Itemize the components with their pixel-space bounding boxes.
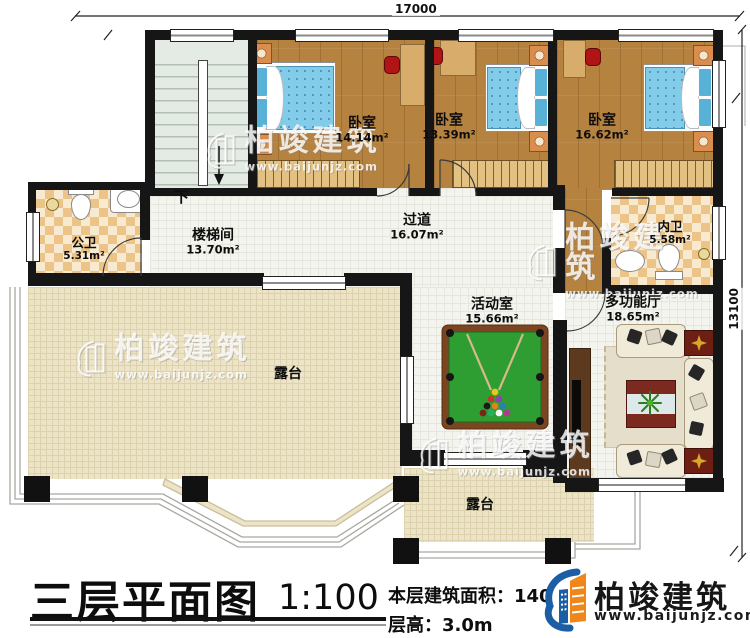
stair-down-label: 下 xyxy=(174,186,189,207)
floor-height-text: 层高：3.0m xyxy=(388,611,493,637)
column xyxy=(24,476,50,502)
stair-landing xyxy=(155,40,248,55)
title-underline xyxy=(30,617,386,621)
column xyxy=(393,476,419,502)
title-underline-thin xyxy=(30,624,386,626)
wall xyxy=(400,450,445,466)
wall xyxy=(612,188,713,196)
plant-icon xyxy=(636,389,664,417)
sofa-pillow xyxy=(689,421,704,436)
bed-bedroom2-sheet xyxy=(517,67,535,129)
billiard-table xyxy=(441,324,549,430)
dim-tick xyxy=(71,11,80,21)
wall xyxy=(409,188,440,196)
dim-tick xyxy=(104,30,112,40)
bed-bedroom3-sheet xyxy=(681,67,699,129)
wall xyxy=(28,182,148,190)
dim-tick xyxy=(732,93,740,103)
wall xyxy=(140,182,150,240)
wall xyxy=(145,30,155,196)
wall xyxy=(565,478,600,492)
room-label-stairwell: 楼梯间 13.70m² xyxy=(186,227,239,256)
nightstand-icon xyxy=(529,45,550,66)
dim-tick xyxy=(738,25,746,34)
wall xyxy=(553,320,567,483)
bed-bedroom2-mattress xyxy=(487,67,521,129)
bed-bedroom1-mattress xyxy=(276,66,334,130)
planter-icon xyxy=(684,448,714,474)
wall xyxy=(713,30,723,60)
wall xyxy=(28,273,264,286)
nightstand-icon xyxy=(529,131,550,152)
nightstand-icon xyxy=(693,131,714,152)
window xyxy=(443,452,527,466)
dim-tick xyxy=(738,553,746,562)
room-label-bedroom1: 卧室 14.14m² xyxy=(335,115,388,144)
column xyxy=(182,476,208,502)
plan-scale: 1:100 xyxy=(278,578,379,618)
floor-area-text: 本层建筑面积：140 xyxy=(388,582,552,608)
window xyxy=(712,60,726,128)
window xyxy=(400,356,414,424)
wall xyxy=(553,248,565,293)
room-label-corridor: 过道 16.07m² xyxy=(390,212,443,241)
room-label-activity: 活动室 15.66m² xyxy=(465,296,518,325)
window xyxy=(26,212,40,262)
dimension-right: 13100 xyxy=(724,288,744,330)
wall xyxy=(400,273,412,358)
room-label-inner-bath: 内卫 5.58m² xyxy=(649,220,690,246)
sliding-door xyxy=(262,276,346,290)
desk-bedroom1 xyxy=(400,44,425,106)
wall xyxy=(248,30,257,196)
planter-icon xyxy=(684,330,714,356)
window xyxy=(598,478,686,492)
bed-bedroom3-pillow xyxy=(698,98,712,127)
tv-icon xyxy=(572,380,581,446)
window xyxy=(170,29,234,42)
wall xyxy=(28,182,36,214)
toilet-icon xyxy=(655,271,683,280)
room-label-public-bath: 公卫 5.31m² xyxy=(63,236,104,262)
wall xyxy=(713,126,723,206)
window xyxy=(458,29,554,42)
bed-bedroom3-pillow xyxy=(698,68,712,97)
eave-line xyxy=(723,46,745,126)
dimension-top: 17000 xyxy=(392,2,440,16)
sink-basin-icon xyxy=(117,190,140,208)
room-label-terrace-small: 露台 xyxy=(466,497,494,513)
brand-logo-icon xyxy=(539,566,593,632)
dim-tick xyxy=(730,546,738,556)
bed-bedroom2-pillow xyxy=(534,98,548,127)
bed-bedroom2-pillow xyxy=(534,68,548,97)
closet-bedroom1 xyxy=(256,160,360,188)
room-label-terrace-main: 露台 xyxy=(274,366,302,382)
wall xyxy=(682,478,724,492)
closet-bedroom2 xyxy=(452,160,550,188)
column xyxy=(545,538,571,564)
sofa-pillow xyxy=(645,451,662,468)
wall xyxy=(476,188,562,196)
wall xyxy=(553,185,565,210)
floorplan-canvas: 卧室 14.14m² 卧室 13.39m² 卧室 16.62m² 公卫 5.31… xyxy=(0,0,750,638)
column xyxy=(393,538,419,564)
terrace-main-floor xyxy=(28,287,402,479)
sink-icon xyxy=(615,250,645,272)
window xyxy=(712,206,726,260)
stair-center-rail xyxy=(198,60,208,186)
wall xyxy=(602,285,723,294)
brand-website: www.baijunjz.com xyxy=(594,608,750,624)
desk-bedroom3 xyxy=(563,40,586,78)
shower-icon xyxy=(46,198,59,211)
shower-icon xyxy=(698,248,710,260)
dim-tick xyxy=(735,11,744,21)
nightstand-icon xyxy=(693,45,714,66)
bed-bedroom3-mattress xyxy=(645,67,685,129)
wall xyxy=(548,30,557,196)
window xyxy=(618,29,714,42)
window xyxy=(295,29,389,42)
chair-bedroom1 xyxy=(384,56,400,74)
sofa-pillow xyxy=(645,328,663,346)
desk-bedroom2 xyxy=(440,40,476,76)
closet-bedroom3 xyxy=(614,160,715,188)
chair-bedroom3 xyxy=(585,48,601,66)
room-label-hall: 多功能厅 18.65m² xyxy=(605,294,661,323)
room-label-bedroom2: 卧室 13.39m² xyxy=(422,112,475,141)
room-label-bedroom3: 卧室 16.62m² xyxy=(575,112,628,141)
bedroom3-passage-floor xyxy=(565,188,602,294)
